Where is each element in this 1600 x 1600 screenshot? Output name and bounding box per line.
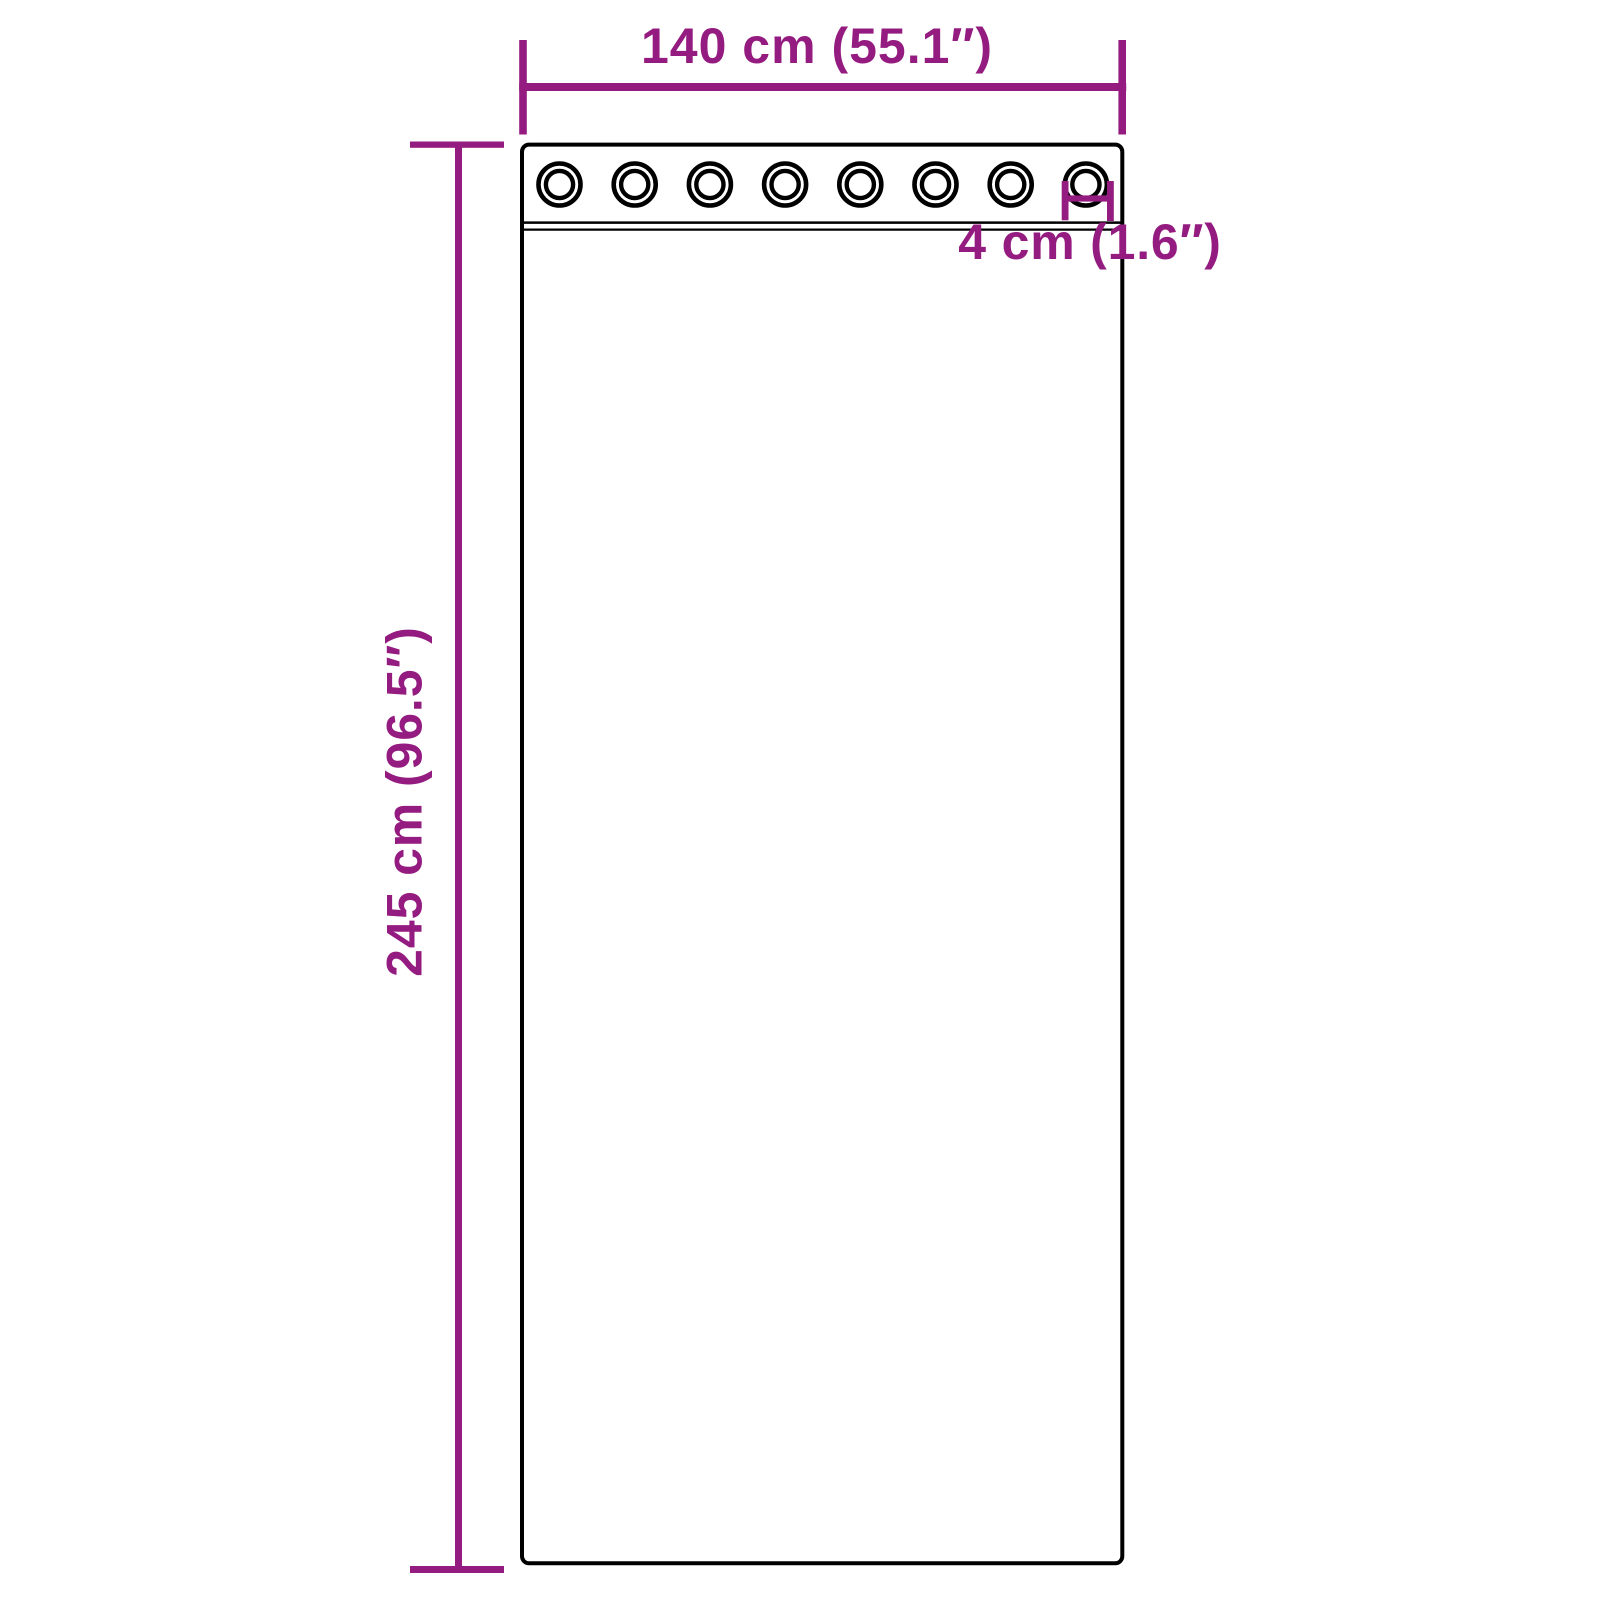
svg-text:140 cm (55.1″): 140 cm (55.1″) [641, 18, 993, 74]
svg-text:4 cm (1.6″): 4 cm (1.6″) [958, 214, 1221, 270]
svg-text:245 cm (96.5″): 245 cm (96.5″) [377, 626, 433, 977]
